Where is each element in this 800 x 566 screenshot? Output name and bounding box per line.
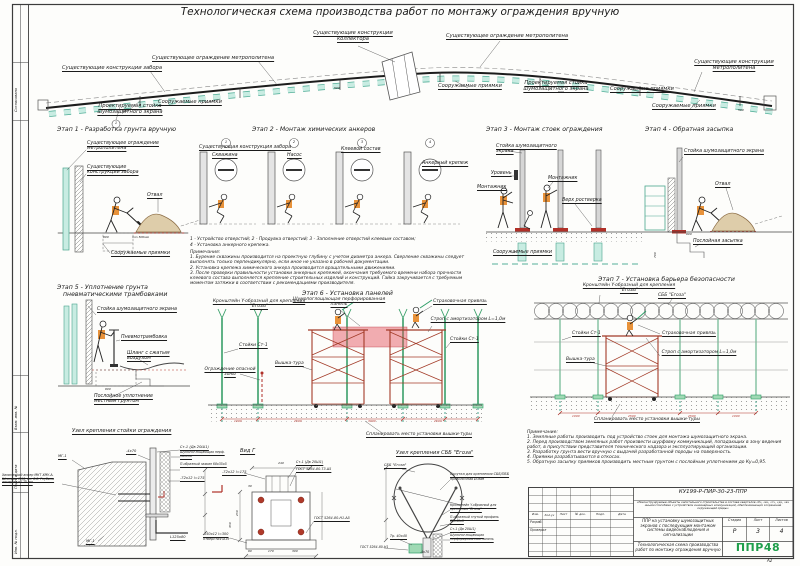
titleblock-col-izm: Изм. — [529, 513, 542, 516]
viewg-label-holes: отверстия Ø19 — [203, 538, 229, 542]
plan-label-designed-post-2: Проектируемая стойка шумозащитного экран… — [510, 81, 602, 93]
node1-label-clamp: П-образный зажим 68х35х5 — [180, 463, 236, 467]
egoza-label-st1: Ст-1 (Дв 20Ш1) — [450, 528, 476, 532]
plan-label-designed-post-1: Проектируемая стойка шумозащитного экран… — [84, 104, 176, 116]
stage3-label-worker-2: Монтажник — [548, 176, 577, 181]
plan-dim-500-d: 500 — [738, 109, 744, 112]
stage4-label-post: Стойка шумозащитного экрана — [684, 149, 772, 154]
plan-dim-500-b: 500 — [334, 87, 340, 90]
titleblock-row-prover: Проверил — [530, 529, 546, 533]
stage4-label-backfill: Послойная засыпка — [693, 239, 743, 244]
stage7-label-lanyard: Строп с амортизатором L=1,0м — [660, 350, 738, 355]
stage3-label-grillage-top: Верх ростверка — [562, 198, 602, 203]
egoza-label-plate: -4х70 — [420, 551, 429, 555]
stage7-label-posts: Стойки Ст-1 — [572, 331, 601, 336]
node1-label-mg1-bottom: МГ-1 — [86, 539, 95, 543]
egoza-label-gost: ГОСТ 5264-80-Н1 — [360, 546, 388, 550]
plan-label-metro-fence-1: Существующее ограждение метрополитена — [152, 56, 274, 62]
viewg-title: Вид Г — [240, 449, 255, 455]
stage2-title: Этап 2 - Монтаж химических анкеров — [252, 126, 375, 133]
viewg-dim-170: 170 — [268, 550, 274, 553]
egoza-label-profile: П-образный гнутый профиль 85х40х5 — [450, 516, 512, 523]
plan-label-metro-fence-2: Существующее ограждение метрополитена — [446, 34, 568, 40]
stage6-label-tower: Вышка-тура — [275, 361, 304, 366]
plan-dim-500-a: 500 — [122, 110, 128, 113]
stage7-label-sbb: СББ "Егоза" — [658, 293, 686, 298]
titleblock-col-podp: Подп. — [591, 513, 610, 516]
titleblock-row-razrab: Разраб. — [530, 521, 543, 525]
stage4-title: Этап 4 - Обратная засыпка — [645, 126, 733, 133]
egoza-label-panel: Шумопоглощающая перфорированная панель — [450, 534, 512, 541]
stage2-caption-line2: 4 - Установка анкерного крепежа. — [190, 243, 270, 248]
node1-label-plate: -4х70 — [126, 449, 136, 453]
stage2-fig-number-1: 1 — [222, 140, 230, 144]
stage5-label-hose: Шланг с сжатым воздухом — [127, 351, 191, 362]
stage4-dim-700: 700 — [654, 252, 657, 258]
stage7-dim-4: 1000 — [732, 415, 740, 418]
titleblock-project: «Реконструируемые объекты капитального с… — [636, 501, 790, 511]
frame-label-inv: Инв. № подл. — [14, 529, 18, 554]
stage5-dim-600: 600 — [105, 388, 111, 391]
stage6-label-danger-zone: Ограждение опасной зоны — [203, 367, 257, 377]
viewg-label-strip: -72х12 l=175 — [222, 470, 247, 474]
egoza-label-sbb: СББ "Егоза" — [384, 463, 406, 467]
stage6-label-level-place: Спланировать место установки вышки-туры — [366, 432, 472, 437]
titleblock-stage-header: Стадия — [723, 519, 746, 523]
stage2-fig-number-3: 3 — [358, 140, 366, 144]
viewg-dim-250: 250 — [236, 510, 239, 516]
frame-label-vzam: Взам. инв. № — [14, 406, 18, 430]
stage7-title: Этап 7 - Установка барьера безопасности — [598, 276, 735, 283]
node1-label-strip: -72х12 l=175 — [180, 476, 205, 480]
node1-label-anchor: Химический анкер МКТ ХМУ-А. Шпилька М16,… — [2, 474, 62, 485]
stage4-dim-600: 600 — [686, 233, 692, 236]
stage7-label-harness: Страховочная привязь — [660, 331, 718, 336]
plan-axis-mark: 1 — [113, 121, 119, 125]
titleblock-sheet-header: Лист — [747, 519, 769, 523]
stage7-label-tower: Вышка-тура — [566, 357, 595, 362]
node1-label-mg1-top: МГ-1 — [58, 454, 67, 458]
titleblock-col-list: Лист — [557, 513, 570, 516]
viewg-label-st1: Ст-1 (Дв 20Ш1) — [296, 461, 323, 465]
note-item-5: 5. Обратную засыпку приямков производить… — [527, 460, 791, 465]
stage1-label-metro-fence: Существующее ограждение метрополитена — [87, 141, 182, 152]
stage5-label-compaction: Послойное уплотнение местным грунтом — [94, 394, 166, 405]
viewg-dim-300: 300 — [292, 550, 298, 553]
titleblock-sheets-header: Листов — [770, 519, 793, 523]
plan-label-pits-4: Сооружаемые приямки — [652, 104, 716, 110]
stage6-label-panel: Шумопоглощающая перфорированная панель — [286, 297, 392, 307]
plan-label-metro-constructions: Существующие конструкции метрополитена — [680, 60, 788, 72]
stage4-label-spoil: Отвал — [715, 182, 730, 187]
stage2-label-anchor: Анкерный крепеж — [422, 161, 468, 166]
stage3-title: Этап 3 - Монтаж стоек ограждения — [486, 126, 602, 133]
egoza-label-tube: Тр. 40х40 — [390, 535, 407, 539]
stage2-note-1: 1. Бурение скважины производится на прое… — [190, 255, 476, 265]
plan-label-collector: Существующие конструкции коллектора — [298, 31, 408, 43]
egoza-title: Узел крепления СББ "Егоза" — [396, 451, 473, 457]
node1-label-angle: L125х80 — [170, 535, 186, 539]
stage1-label-fence: Существующие конструкции забора — [87, 165, 159, 176]
titleblock-sheets-value: 4 — [770, 529, 793, 536]
stage2-caption-line1: 1 - Устройство отверстий; 2 - Продувка о… — [190, 237, 416, 242]
viewg-label-gost2: ГОСТ 5264-80-Н1-∆5 — [314, 517, 350, 521]
stage7-label-bracket: Кронштейн Y-образный для крепления "Егоз… — [578, 283, 680, 293]
viewg-dim-60: 60 — [248, 550, 252, 553]
stage2-label-pump: Насос — [287, 153, 302, 158]
stage6-label-harness: Страховочная привязь — [432, 299, 488, 304]
node1-label-st1: Ст-1 (Дв 20Ш1) — [180, 445, 209, 449]
stage5-label-rammer: Пневмотрамбовка — [121, 335, 167, 340]
stage7-dim-3: 2500 — [688, 415, 696, 418]
stage3-label-worker-1: Монтажник — [477, 185, 506, 190]
stage2-fig-number-2: 2 — [290, 140, 298, 144]
titleblock-sheet-name: Технологическая схема производства работ… — [635, 543, 721, 552]
stage5-label-post: Стойка шумозащитного экрана — [97, 307, 177, 312]
viewg-label-gost1: ГОСТ 5264-80-Т3-∆5 — [296, 468, 331, 472]
stage1-dim-min500: min 500мм — [132, 236, 149, 239]
page-title: Технологическая схема производства работ… — [170, 7, 630, 19]
viewg-dim-30: 30 — [248, 485, 252, 488]
stage7-dim-1: 1000 — [572, 415, 580, 418]
stage6-label-posts-right: Стойки Ст-1 — [450, 337, 479, 342]
stage1-title: Этап 1 - Разработка грунта вручную — [57, 126, 176, 133]
egoza-label-bracket: Кронштейн Y-образный для крепления "Егоз… — [450, 504, 512, 511]
node1-title: Узел крепления стойки ограждения — [72, 429, 171, 435]
stage5-title-line2: пневматическими трамбовками — [63, 291, 167, 298]
stage2-label-wall: Существующая конструкция забора — [199, 145, 291, 150]
node1-label-panel: Шумопоглощающая перф. панель — [180, 451, 236, 458]
stage6-dim-2: 2500 — [294, 420, 302, 423]
egoza-label-twist-2: проволочная Ø3мм — [450, 478, 484, 482]
stage2-fig-number-4: 4 — [426, 140, 434, 144]
stage6-dim-4: 2500 — [434, 420, 442, 423]
stage6-title: Этап 6 - Установка панелей — [302, 290, 393, 297]
stage2-note-3: 3. После проверки правильности установки… — [190, 271, 476, 286]
frame-label-approved: Согласовано — [14, 88, 18, 112]
note-item-2: 2. Перед производством земляных работ пр… — [527, 440, 791, 450]
stage6-label-posts-left: Стойки Ст-1 — [239, 343, 268, 348]
stage6-dim-1: 1000 — [234, 420, 242, 423]
plan-dim-500-c: 500 — [558, 91, 564, 94]
stage3-label-pits: Сооружаемые приямки — [493, 250, 552, 255]
viewg-dim-240: 240 — [272, 462, 290, 465]
titleblock-col-koluch: Кол.уч — [543, 514, 556, 517]
company-logo: ППР48 — [724, 542, 792, 555]
stage2-label-glue: Клеевой состав — [341, 147, 381, 152]
stage6-label-lanyard: Строп с амортизатором L=1,0м — [430, 317, 506, 322]
stage1-label-spoil: Отвал — [147, 193, 162, 198]
drawing-sheet: Технологическая схема производства работ… — [0, 0, 800, 566]
stage3-label-post: Стойка шумозащитного экрана — [496, 144, 568, 155]
plan-label-pits-3: Сооружаемые приямки — [610, 87, 674, 93]
plan-label-pits-2: Сооружаемые приямки — [438, 84, 502, 90]
stage3-label-level: Уровень — [491, 171, 512, 176]
stage5-title-line1: Этап 5 - Уплотнение грунта — [57, 284, 148, 291]
titleblock-sheet-value: 3 — [747, 529, 769, 536]
plan-label-existing-fence: Существующие конструкции забора — [62, 66, 162, 72]
titleblock-ppr-name: ППР на установку шумозащитных экранов с … — [635, 519, 721, 537]
stage1-dim-600: 600 — [103, 236, 109, 239]
stage6-dim-3: 3000 — [368, 420, 376, 423]
viewg-dim-350: 350 — [229, 522, 232, 528]
format-label: А2 — [767, 559, 772, 564]
stage2-label-borehole: Скважина — [212, 153, 238, 158]
stage7-label-level-place: Спланировать место установки вышки-туры — [594, 417, 700, 422]
titleblock-doc-code: КУ199-Р-ПИР-30-23-ППР — [634, 489, 792, 495]
titleblock-col-data: Дата — [611, 513, 633, 516]
stage1-label-pits: Сооружаемые приямки — [111, 251, 170, 256]
titleblock-col-ndok: № док. — [571, 513, 590, 516]
stage7-dim-2: 2500 — [628, 415, 636, 418]
titleblock-stage-value: Р — [723, 529, 746, 536]
